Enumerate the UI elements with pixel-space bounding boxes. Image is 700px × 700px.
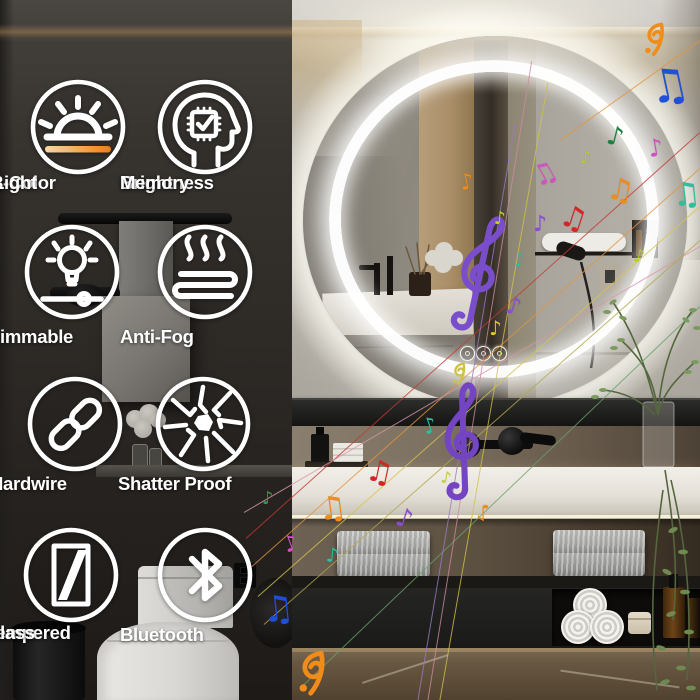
- anti-fog-steam-icon: [155, 222, 255, 322]
- memory-head-chip-icon: [155, 77, 255, 177]
- gray-towel-stack-left: [337, 531, 430, 577]
- touch-button-icon: [497, 351, 502, 356]
- white-flower: [134, 420, 152, 438]
- touch-button-icon: [481, 351, 486, 356]
- folded-hand-towels: [333, 443, 363, 462]
- wall-corner-shadow: [0, 0, 14, 700]
- bluetooth-icon: [155, 525, 255, 625]
- wall-faucet-spout: [455, 432, 481, 458]
- dimmable-bulb-slider-icon: [22, 222, 122, 322]
- hardwire-chain-icon: [25, 374, 125, 474]
- wall-faucet-handle: [498, 427, 526, 455]
- mirror-touch-button-2[interactable]: [476, 346, 491, 361]
- tempered-glass-icon: [21, 525, 121, 625]
- mirror-touch-button-3[interactable]: [492, 346, 507, 361]
- cove-light: [0, 24, 292, 42]
- sunrise-3-color-icon: [28, 77, 128, 177]
- touch-button-icon: [465, 351, 470, 356]
- product-image: 3-ColorLight BrightnessMemory Dimmable: [0, 0, 700, 700]
- shatter-proof-crack-icon: [153, 374, 253, 474]
- black-soap-bottle: [311, 434, 329, 462]
- round-wall-device: [250, 578, 292, 648]
- green-plant: [545, 280, 700, 700]
- mirror-touch-button-1[interactable]: [460, 346, 475, 361]
